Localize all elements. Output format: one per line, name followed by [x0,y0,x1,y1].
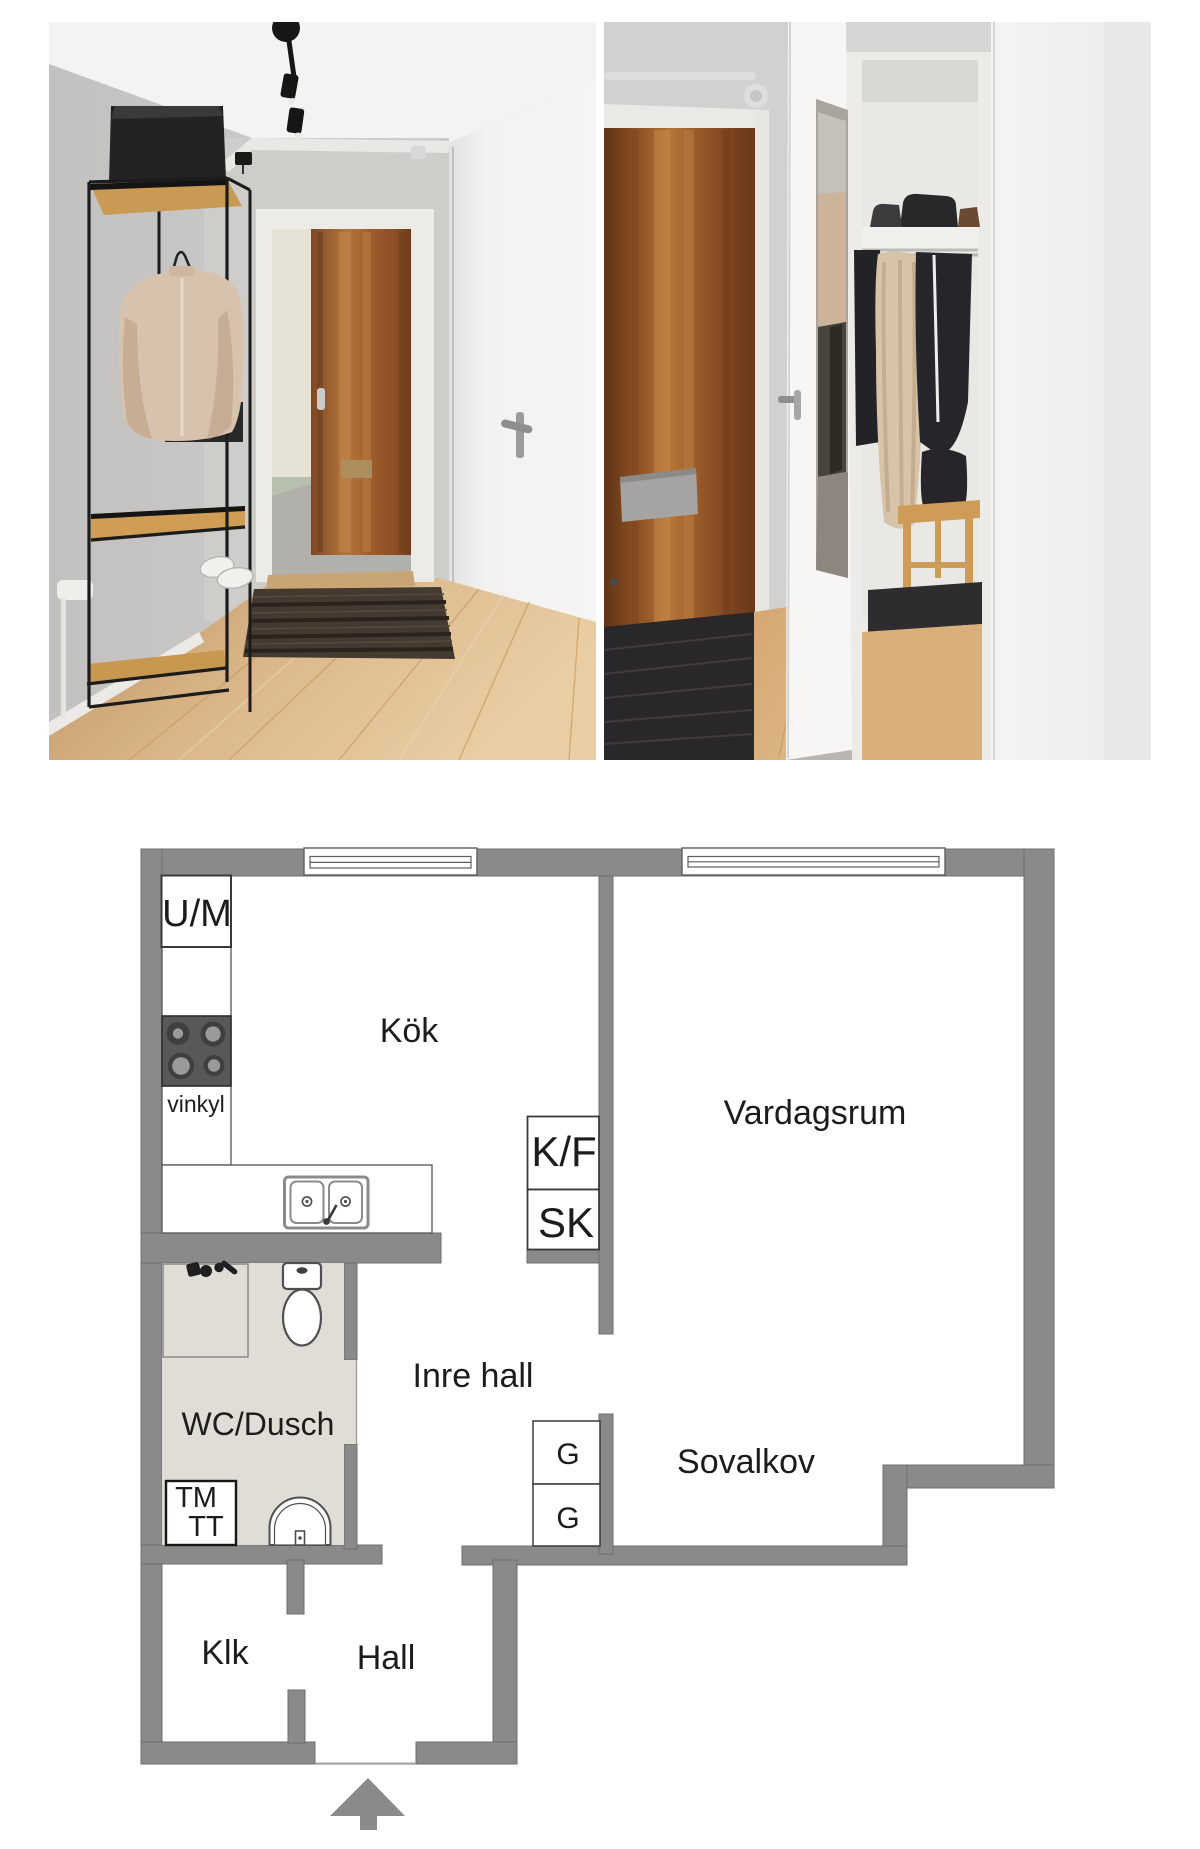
svg-text:K/F: K/F [531,1128,596,1175]
svg-text:G: G [556,1502,579,1535]
svg-text:TT: TT [188,1511,224,1543]
svg-text:vinkyl: vinkyl [167,1091,225,1117]
svg-text:Klk: Klk [201,1634,249,1672]
svg-text:U/M: U/M [162,893,232,935]
svg-text:Vardagsrum: Vardagsrum [724,1094,907,1132]
svg-text:G: G [556,1438,579,1471]
svg-text:Hall: Hall [357,1639,416,1677]
svg-text:Sovalkov: Sovalkov [677,1443,815,1481]
svg-text:Kök: Kök [380,1012,440,1050]
svg-text:Inre hall: Inre hall [413,1357,534,1395]
svg-text:SK: SK [538,1199,594,1246]
svg-text:TM: TM [175,1482,217,1514]
svg-text:WC/Dusch: WC/Dusch [182,1406,335,1442]
